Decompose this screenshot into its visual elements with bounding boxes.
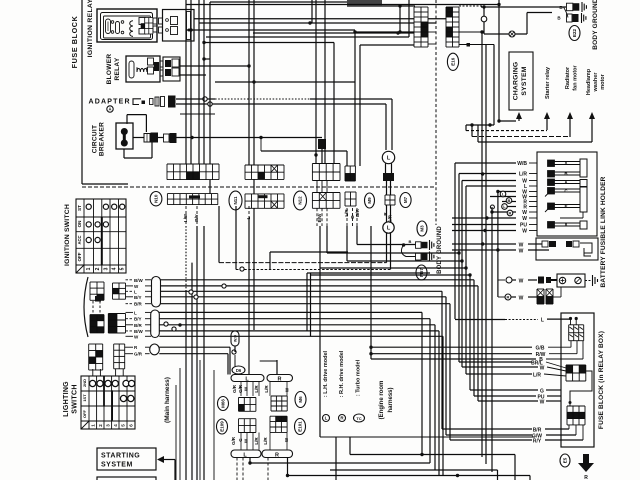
svg-text:B/Y: B/Y xyxy=(194,214,199,222)
svg-text:M7: M7 xyxy=(403,196,408,203)
svg-text:E109: E109 xyxy=(220,421,225,432)
svg-text:R: R xyxy=(507,294,510,299)
svg-text:R: R xyxy=(275,453,279,459)
svg-text:B/R: B/R xyxy=(134,323,143,328)
svg-text:E5: E5 xyxy=(563,457,568,463)
svg-text:OFF: OFF xyxy=(82,409,87,418)
svg-text:W: W xyxy=(522,216,527,222)
svg-text:3: 3 xyxy=(103,267,109,270)
svg-text:5: 5 xyxy=(120,267,126,270)
svg-text:L: L xyxy=(541,318,544,324)
svg-text:BODY GROUND: BODY GROUND xyxy=(437,226,443,274)
svg-text:M3: M3 xyxy=(420,225,425,232)
svg-text:: R.H. drive model: : R.H. drive model xyxy=(339,350,345,397)
svg-text:B/Y: B/Y xyxy=(134,317,142,322)
svg-text:TC: TC xyxy=(356,416,361,421)
svg-text:E16: E16 xyxy=(451,57,456,66)
svg-text:L: L xyxy=(134,289,137,294)
svg-text:IGNITION SWITCH: IGNITION SWITCH xyxy=(64,204,71,266)
svg-text:B/W: B/W xyxy=(134,278,144,283)
svg-text:N11: N11 xyxy=(233,196,238,205)
svg-text:R/Y: R/Y xyxy=(533,439,542,445)
svg-text:G/R: G/R xyxy=(134,352,143,357)
svg-text:1ST: 1ST xyxy=(82,394,87,402)
svg-text:BODY GROUND: BODY GROUND xyxy=(592,0,599,50)
svg-text:E22: E22 xyxy=(572,29,577,38)
svg-text:G/B: G/B xyxy=(536,345,545,351)
svg-text:BATTERY FUSIBLE LINK HOLDER: BATTERY FUSIBLE LINK HOLDER xyxy=(600,176,607,287)
svg-text:Headlamp: Headlamp xyxy=(586,68,592,95)
svg-text:L/R: L/R xyxy=(254,385,259,393)
svg-text:OFF: OFF xyxy=(77,252,82,261)
svg-text:ST: ST xyxy=(77,205,82,211)
svg-text:L/W: L/W xyxy=(183,213,188,222)
svg-text:N12: N12 xyxy=(298,196,303,205)
svg-text:W: W xyxy=(540,366,545,372)
svg-text:W: W xyxy=(522,229,527,235)
svg-text:SYSTEM: SYSTEM xyxy=(521,66,528,95)
svg-text:RELAY: RELAY xyxy=(114,57,121,80)
svg-text:W: W xyxy=(540,400,545,406)
svg-text:STARTING: STARTING xyxy=(101,453,140,460)
svg-text:G/R: G/R xyxy=(238,384,243,393)
svg-text:fan motor: fan motor xyxy=(573,64,579,90)
svg-text:G/R: G/R xyxy=(388,214,393,223)
svg-text:N10: N10 xyxy=(154,194,159,203)
svg-text:B/R: B/R xyxy=(355,208,360,217)
svg-text:B: B xyxy=(409,239,412,244)
svg-text:E: E xyxy=(564,204,567,209)
svg-text:W: W xyxy=(519,296,524,302)
svg-text:SWITCH: SWITCH xyxy=(72,384,79,413)
svg-text:L: L xyxy=(134,310,137,315)
svg-text:FUSE BLOCK: FUSE BLOCK xyxy=(70,15,79,68)
svg-text:M9: M9 xyxy=(367,197,372,204)
svg-text:R: R xyxy=(278,377,282,383)
svg-text:: L.H. drive model: : L.H. drive model xyxy=(323,350,329,397)
svg-text:washer: washer xyxy=(593,72,599,93)
svg-text:: Turbo model: : Turbo model xyxy=(356,359,362,396)
svg-text:(Engine room: (Engine room xyxy=(379,381,385,420)
svg-text:E101: E101 xyxy=(298,421,303,432)
svg-text:harness): harness) xyxy=(388,387,394,412)
svg-text:motor: motor xyxy=(600,73,606,89)
svg-text:W.D: W.D xyxy=(234,335,238,342)
svg-text:L/R: L/R xyxy=(519,172,527,178)
svg-text:B/W: B/W xyxy=(134,329,144,334)
svg-text:L/R: L/R xyxy=(263,437,268,445)
svg-text:W: W xyxy=(519,249,524,255)
svg-text:L: L xyxy=(325,416,328,421)
svg-text:W/B: W/B xyxy=(517,161,527,167)
svg-text:BLOWER: BLOWER xyxy=(106,54,113,85)
svg-text:L/R: L/R xyxy=(533,373,541,379)
svg-text:L/R: L/R xyxy=(344,209,349,217)
svg-text:Radiator: Radiator xyxy=(565,66,571,89)
svg-text:W: W xyxy=(519,279,524,285)
svg-text:L/R: L/R xyxy=(254,437,259,445)
svg-text:LIGHTING: LIGHTING xyxy=(63,381,70,417)
svg-text:D6: D6 xyxy=(236,368,242,373)
svg-text:1: 1 xyxy=(86,267,92,270)
svg-text:ACC: ACC xyxy=(77,235,82,244)
svg-text:G/R: G/R xyxy=(232,384,237,393)
svg-text:R: R xyxy=(584,475,588,480)
svg-text:B/W: B/W xyxy=(317,213,322,223)
svg-text:M66: M66 xyxy=(221,399,226,408)
svg-text:4: 4 xyxy=(112,267,118,270)
svg-text:ON: ON xyxy=(77,221,82,228)
svg-text:CIRCUIT: CIRCUIT xyxy=(92,125,99,153)
svg-text:M6: M6 xyxy=(298,396,303,403)
svg-text:ADAPTER: ADAPTER xyxy=(89,99,131,106)
svg-text:L/R: L/R xyxy=(264,385,269,393)
svg-text:G/R: G/R xyxy=(231,436,236,445)
svg-text:B/R: B/R xyxy=(134,302,143,307)
svg-text:G: G xyxy=(238,438,243,442)
svg-text:FUSE BLOCK (in RELAY BOX): FUSE BLOCK (in RELAY BOX) xyxy=(598,331,605,429)
svg-text:B: B xyxy=(508,198,511,203)
svg-text:2: 2 xyxy=(95,267,101,270)
svg-text:B/Y: B/Y xyxy=(134,295,142,300)
svg-text:Starter relay: Starter relay xyxy=(545,66,551,99)
svg-text:CHARGING: CHARGING xyxy=(513,62,520,101)
svg-text:A: A xyxy=(108,107,111,112)
svg-text:IGNITION RELAY: IGNITION RELAY xyxy=(87,0,94,57)
svg-text:R: R xyxy=(509,210,512,215)
svg-text:2ND: 2ND xyxy=(82,379,87,387)
svg-text:(Main harness): (Main harness) xyxy=(164,377,171,423)
svg-text:BREAKER: BREAKER xyxy=(99,122,106,156)
svg-text:SYSTEM: SYSTEM xyxy=(101,462,133,469)
